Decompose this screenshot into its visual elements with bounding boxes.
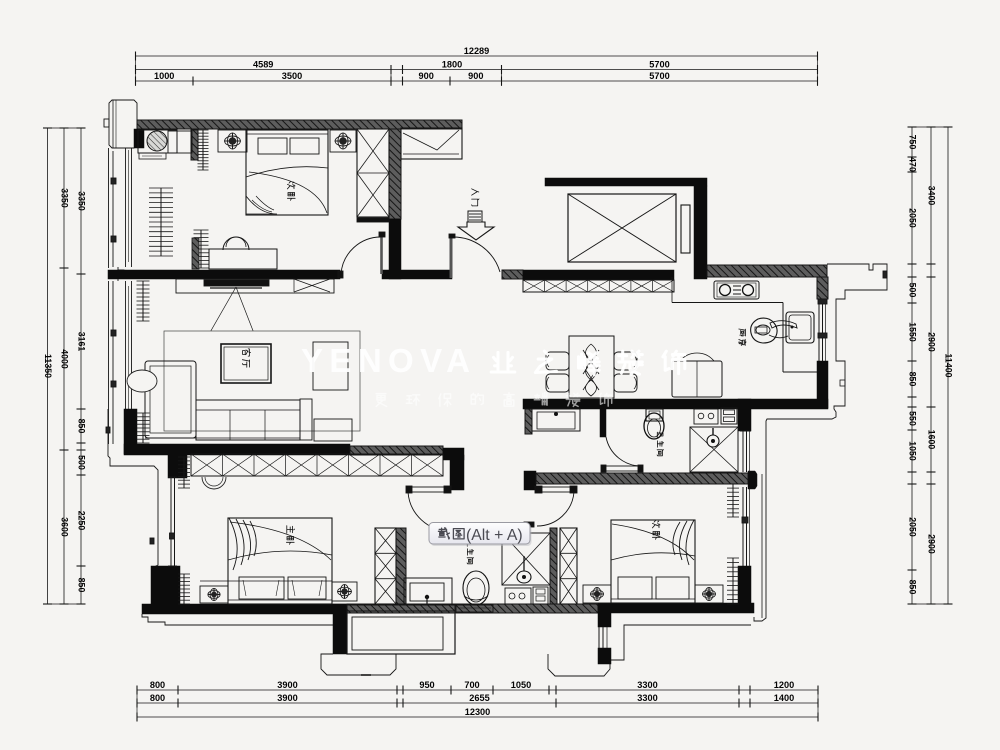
svg-text:1000: 1000: [154, 71, 174, 81]
svg-text:YENOVA: YENOVA: [301, 342, 476, 379]
svg-text:2900: 2900: [927, 332, 937, 352]
svg-text:1550: 1550: [908, 322, 918, 342]
svg-text:4000: 4000: [60, 349, 70, 369]
svg-text:2050: 2050: [908, 517, 918, 537]
svg-text:1800: 1800: [442, 59, 462, 69]
svg-text:470: 470: [908, 157, 918, 172]
svg-text:3900: 3900: [277, 693, 297, 703]
svg-text:1050: 1050: [908, 441, 918, 461]
svg-text:11400: 11400: [944, 354, 954, 378]
svg-text:2900: 2900: [927, 534, 937, 554]
svg-text:1600: 1600: [927, 430, 937, 450]
svg-text:3350: 3350: [77, 191, 87, 211]
svg-text:850: 850: [77, 419, 87, 434]
svg-text:2050: 2050: [908, 208, 918, 228]
svg-text:950: 950: [419, 680, 434, 690]
svg-text:3400: 3400: [927, 186, 937, 206]
svg-text:550: 550: [908, 411, 918, 426]
svg-text:900: 900: [468, 71, 483, 81]
svg-text:800: 800: [150, 693, 165, 703]
svg-text:3350: 3350: [60, 188, 70, 208]
svg-text:1400: 1400: [774, 693, 794, 703]
svg-text:5700: 5700: [649, 59, 669, 69]
svg-text:500: 500: [908, 283, 918, 298]
svg-text:850: 850: [908, 580, 918, 595]
svg-text:1200: 1200: [774, 680, 794, 690]
svg-text:700: 700: [464, 680, 479, 690]
svg-text:3900: 3900: [277, 680, 297, 690]
svg-text:3300: 3300: [637, 693, 657, 703]
svg-text:750: 750: [908, 135, 918, 150]
svg-text:3600: 3600: [60, 517, 70, 537]
svg-text:4589: 4589: [253, 59, 273, 69]
svg-text:5700: 5700: [649, 71, 669, 81]
svg-text:500: 500: [77, 455, 87, 470]
svg-text:12300: 12300: [465, 707, 491, 717]
svg-text:3161: 3161: [77, 332, 87, 352]
svg-text:3500: 3500: [282, 71, 302, 81]
svg-text:11350: 11350: [43, 354, 53, 378]
svg-text:3300: 3300: [637, 680, 657, 690]
svg-text:850: 850: [77, 578, 87, 593]
svg-text:2655: 2655: [469, 693, 489, 703]
svg-text:800: 800: [150, 680, 165, 690]
svg-text:900: 900: [419, 71, 434, 81]
svg-text:1050: 1050: [511, 680, 531, 690]
svg-text:2250: 2250: [77, 511, 87, 531]
svg-text:12289: 12289: [464, 46, 490, 56]
svg-text:(Alt + A): (Alt + A): [466, 527, 523, 544]
svg-text:850: 850: [908, 372, 918, 387]
